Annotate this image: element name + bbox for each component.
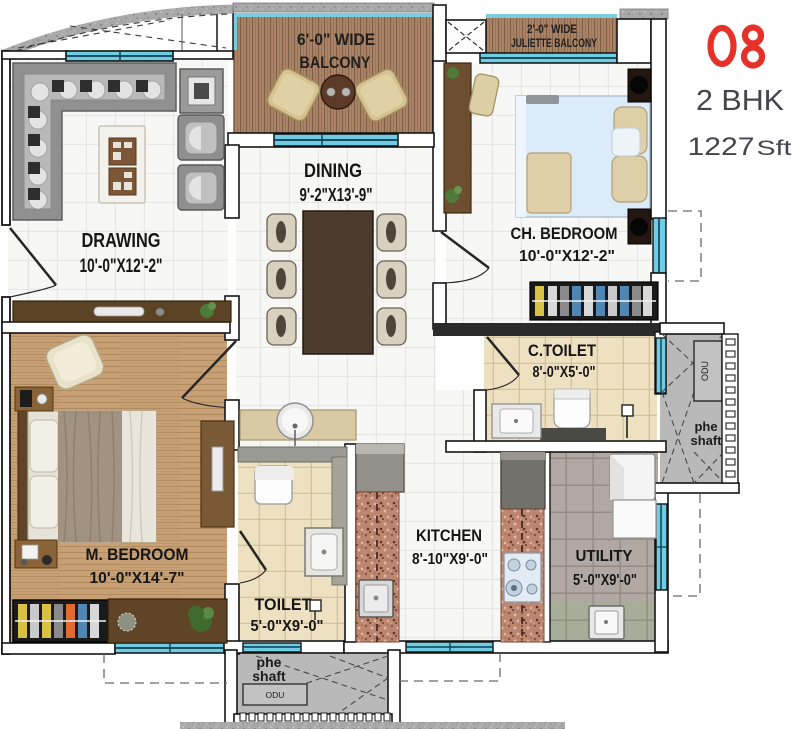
svg-text:DINING: DINING — [304, 161, 362, 182]
svg-text:KITCHEN: KITCHEN — [416, 526, 482, 545]
svg-text:8'-0"X5'-0": 8'-0"X5'-0" — [533, 364, 596, 381]
svg-text:CH. BEDROOM: CH. BEDROOM — [511, 224, 618, 243]
svg-text:TOILET: TOILET — [255, 595, 313, 614]
svg-text:1227: 1227 — [688, 133, 755, 161]
svg-text:C.TOILET: C.TOILET — [528, 341, 597, 360]
svg-text:10'-0"X14'-7": 10'-0"X14'-7" — [90, 570, 185, 587]
svg-text:5'-0"X9'-0": 5'-0"X9'-0" — [573, 572, 637, 589]
svg-text:M. BEDROOM: M. BEDROOM — [86, 545, 189, 564]
svg-text:BALCONY: BALCONY — [300, 53, 372, 72]
svg-text:Sft: Sft — [757, 137, 792, 160]
svg-text:10'-0"X12'-2": 10'-0"X12'-2" — [80, 256, 163, 277]
svg-text:2 BHK: 2 BHK — [696, 85, 785, 117]
svg-text:10'-0"X12'-2": 10'-0"X12'-2" — [519, 248, 615, 265]
svg-text:shaft: shaft — [690, 433, 722, 448]
svg-text:shaft: shaft — [252, 668, 286, 684]
svg-text:UTILITY: UTILITY — [576, 548, 633, 565]
svg-text:ODU: ODU — [700, 361, 710, 381]
svg-text:phe: phe — [694, 419, 717, 434]
svg-text:5'-0"X9'-0": 5'-0"X9'-0" — [251, 618, 324, 635]
svg-text:2'-0" WIDE: 2'-0" WIDE — [527, 24, 577, 36]
svg-text:ODU: ODU — [266, 690, 285, 700]
svg-text:JULIETTE BALCONY: JULIETTE BALCONY — [511, 36, 597, 50]
svg-text:9'-2"X13'-9": 9'-2"X13'-9" — [300, 185, 373, 205]
svg-text:DRAWING: DRAWING — [82, 230, 161, 252]
svg-text:6'-0" WIDE: 6'-0" WIDE — [297, 30, 375, 49]
svg-text:8'-10"X9'-0": 8'-10"X9'-0" — [412, 551, 488, 568]
